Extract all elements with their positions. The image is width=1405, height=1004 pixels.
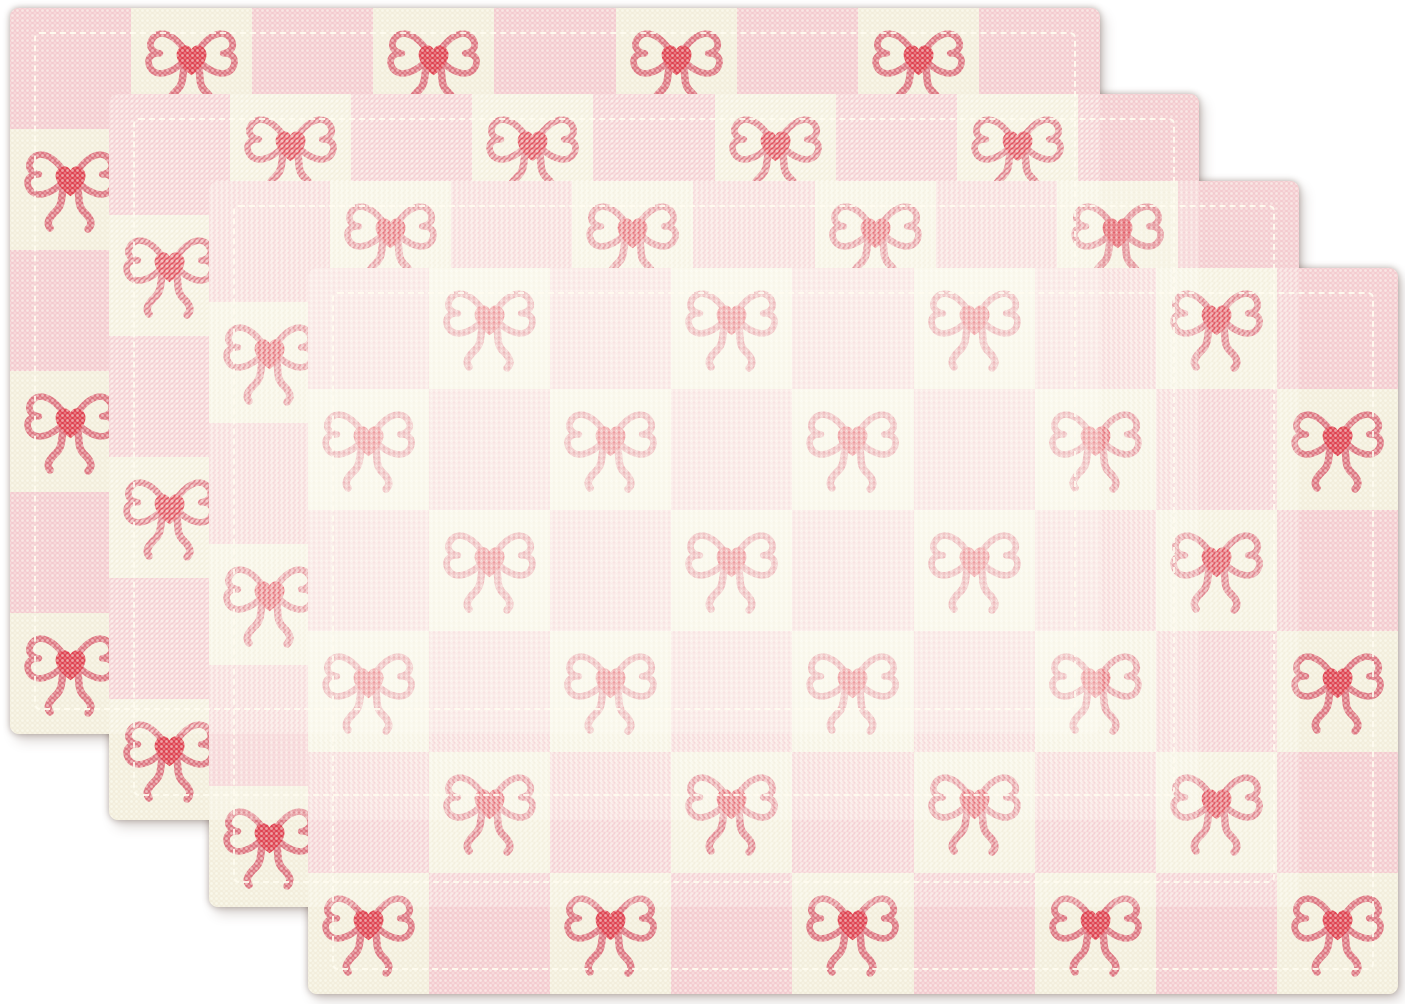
cream-square bbox=[914, 752, 1035, 873]
pink-square bbox=[914, 631, 1035, 752]
heart-bow-icon bbox=[792, 631, 913, 752]
heart-bow-icon bbox=[671, 510, 792, 631]
heart-bow-icon bbox=[429, 752, 550, 873]
cream-square bbox=[1277, 873, 1398, 994]
cream-square bbox=[1277, 389, 1398, 510]
heart-bow-icon bbox=[914, 510, 1035, 631]
pink-square bbox=[308, 268, 429, 389]
heart-bow-icon bbox=[550, 389, 671, 510]
pink-square bbox=[1156, 631, 1277, 752]
pink-square bbox=[914, 389, 1035, 510]
pink-square bbox=[308, 510, 429, 631]
pink-square bbox=[792, 752, 913, 873]
cream-square bbox=[671, 752, 792, 873]
pink-square bbox=[1156, 873, 1277, 994]
heart-bow-icon bbox=[914, 268, 1035, 389]
cream-square bbox=[1035, 631, 1156, 752]
cream-square bbox=[429, 268, 550, 389]
pink-square bbox=[429, 389, 550, 510]
pink-square bbox=[550, 752, 671, 873]
cream-square bbox=[1156, 268, 1277, 389]
heart-bow-icon bbox=[1035, 873, 1156, 994]
heart-bow-icon bbox=[671, 268, 792, 389]
heart-bow-icon bbox=[429, 268, 550, 389]
pink-square bbox=[671, 389, 792, 510]
placemat-stack bbox=[0, 0, 1405, 1004]
cream-square bbox=[550, 873, 671, 994]
heart-bow-icon bbox=[1277, 389, 1398, 510]
heart-bow-icon bbox=[1035, 389, 1156, 510]
cream-square bbox=[308, 631, 429, 752]
pink-square bbox=[914, 873, 1035, 994]
cream-square bbox=[792, 873, 913, 994]
cream-square bbox=[308, 873, 429, 994]
pink-square bbox=[1035, 510, 1156, 631]
pink-square bbox=[1277, 268, 1398, 389]
cream-square bbox=[1156, 752, 1277, 873]
pink-square bbox=[1156, 389, 1277, 510]
pink-square bbox=[550, 510, 671, 631]
cream-square bbox=[671, 268, 792, 389]
heart-bow-icon bbox=[1156, 510, 1277, 631]
heart-bow-icon bbox=[429, 510, 550, 631]
pink-square bbox=[671, 631, 792, 752]
heart-bow-icon bbox=[308, 389, 429, 510]
cream-square bbox=[1277, 631, 1398, 752]
pink-square bbox=[308, 752, 429, 873]
cream-square bbox=[792, 631, 913, 752]
pink-square bbox=[1277, 752, 1398, 873]
pink-square bbox=[1277, 510, 1398, 631]
cream-square bbox=[1035, 389, 1156, 510]
heart-bow-icon bbox=[308, 631, 429, 752]
heart-bow-icon bbox=[550, 631, 671, 752]
pink-square bbox=[792, 268, 913, 389]
heart-bow-icon bbox=[792, 389, 913, 510]
heart-bow-icon bbox=[1156, 752, 1277, 873]
pink-square bbox=[1035, 752, 1156, 873]
cream-square bbox=[1035, 873, 1156, 994]
heart-bow-icon bbox=[792, 873, 913, 994]
cream-square bbox=[914, 268, 1035, 389]
cream-square bbox=[914, 510, 1035, 631]
pink-square bbox=[792, 510, 913, 631]
cream-square bbox=[429, 752, 550, 873]
pink-square bbox=[1035, 268, 1156, 389]
cream-square bbox=[308, 389, 429, 510]
heart-bow-icon bbox=[1156, 268, 1277, 389]
cream-square bbox=[1156, 510, 1277, 631]
cream-square bbox=[671, 510, 792, 631]
pink-square bbox=[550, 268, 671, 389]
cream-square bbox=[550, 389, 671, 510]
pink-square bbox=[429, 631, 550, 752]
heart-bow-icon bbox=[1035, 631, 1156, 752]
heart-bow-icon bbox=[914, 752, 1035, 873]
heart-bow-icon bbox=[1277, 631, 1398, 752]
heart-bow-icon bbox=[308, 873, 429, 994]
checkerboard-grid bbox=[308, 268, 1398, 994]
pink-square bbox=[429, 873, 550, 994]
heart-bow-icon bbox=[1277, 873, 1398, 994]
heart-bow-icon bbox=[671, 752, 792, 873]
cream-square bbox=[792, 389, 913, 510]
heart-bow-icon bbox=[550, 873, 671, 994]
placemat-4 bbox=[308, 268, 1398, 994]
cream-square bbox=[429, 510, 550, 631]
pink-square bbox=[671, 873, 792, 994]
cream-square bbox=[550, 631, 671, 752]
